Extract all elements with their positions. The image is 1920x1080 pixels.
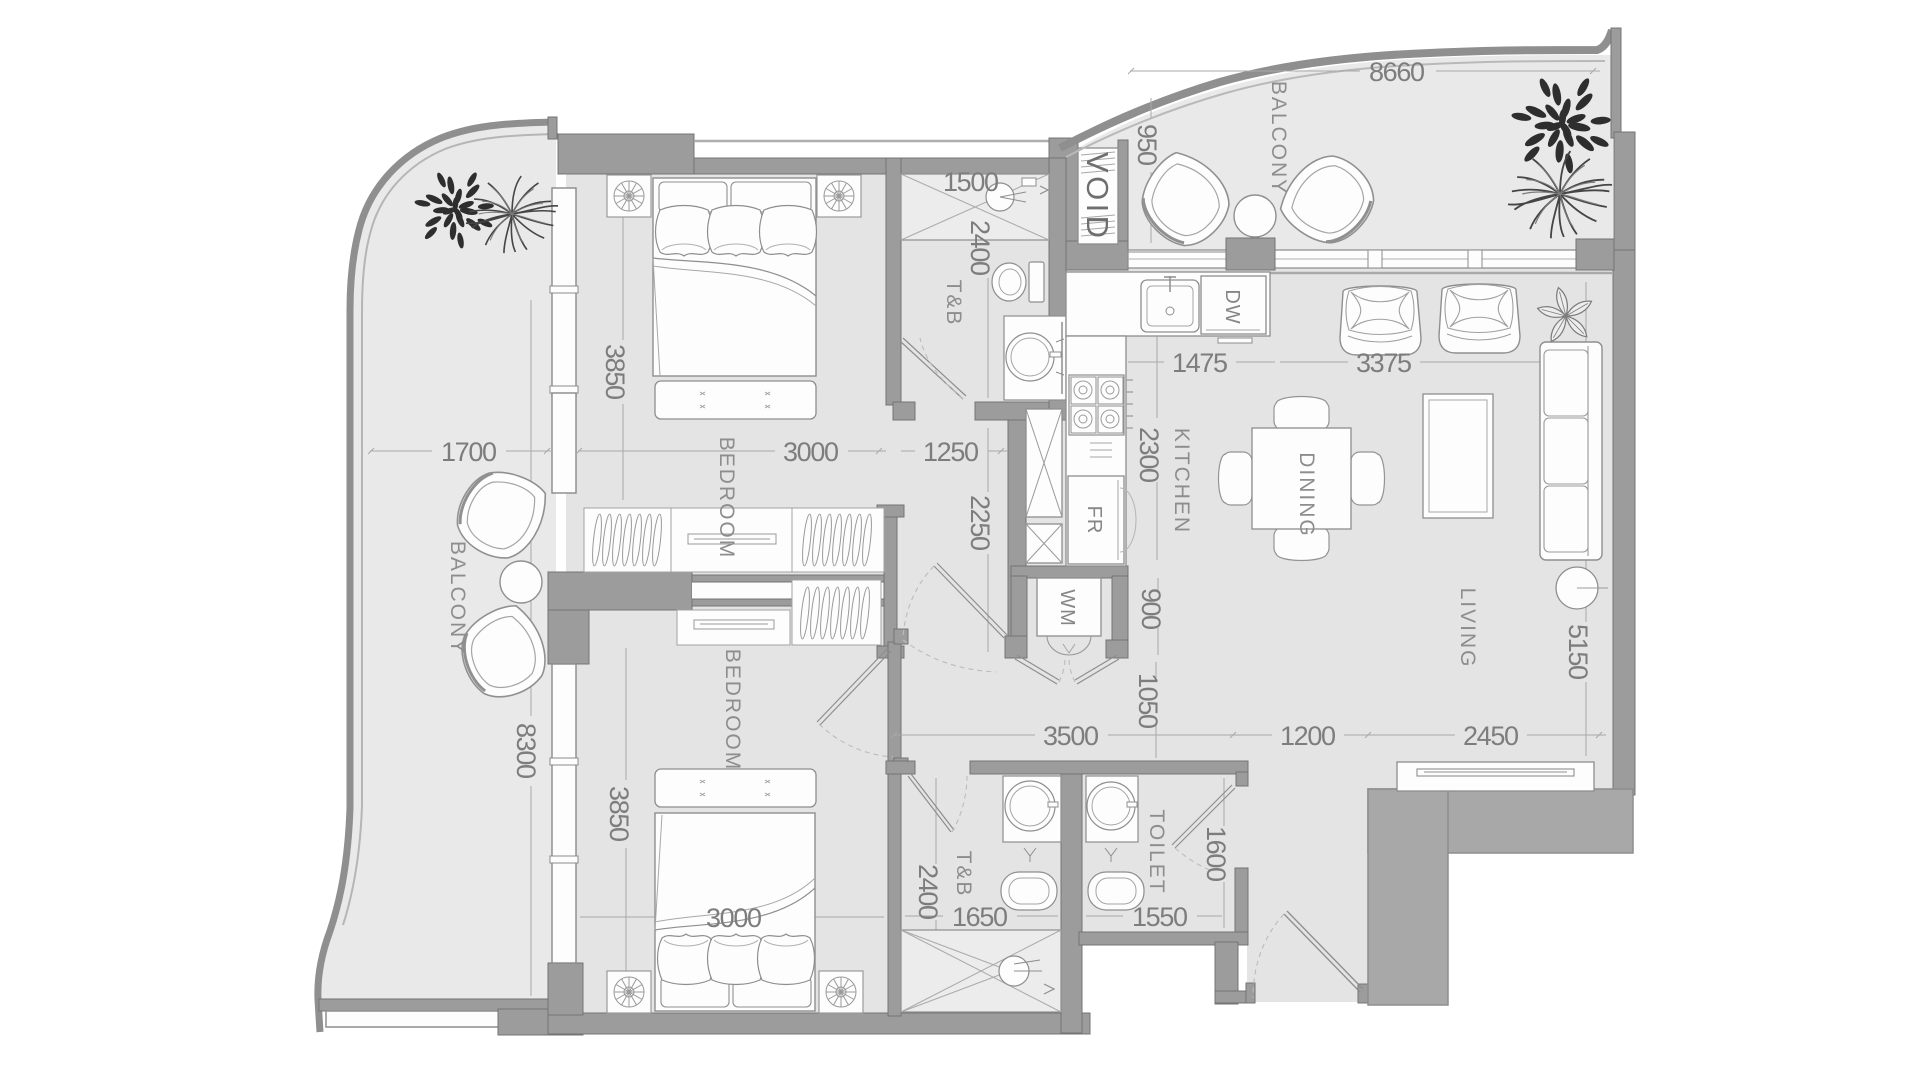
svg-text:1250: 1250 [923,437,979,467]
svg-text:950: 950 [1132,124,1162,166]
svg-text:1650: 1650 [952,902,1008,932]
svg-text:2400: 2400 [965,220,995,276]
svg-text:8300: 8300 [511,723,541,779]
svg-text:T&B: T&B [952,851,975,898]
svg-text:WM: WM [1056,589,1078,627]
svg-text:VOID: VOID [1080,152,1115,240]
svg-text:5150: 5150 [1563,624,1593,680]
svg-text:8660: 8660 [1369,57,1425,87]
svg-text:2300: 2300 [1134,427,1164,483]
svg-text:3850: 3850 [600,344,630,400]
svg-text:1700: 1700 [441,437,497,467]
svg-text:1200: 1200 [1280,721,1336,751]
svg-text:3000: 3000 [706,903,762,933]
svg-text:1050: 1050 [1133,673,1163,729]
svg-text:BALCONY: BALCONY [446,541,469,655]
svg-text:DW: DW [1221,289,1243,324]
svg-text:3500: 3500 [1043,721,1099,751]
svg-text:1500: 1500 [943,167,999,197]
svg-text:3375: 3375 [1356,348,1412,378]
svg-text:BEDROOM: BEDROOM [715,437,738,560]
svg-text:1550: 1550 [1132,902,1188,932]
svg-text:2250: 2250 [965,495,995,551]
svg-text:T&B: T&B [942,280,965,327]
svg-text:LIVING: LIVING [1456,588,1479,669]
svg-text:BEDROOM: BEDROOM [721,649,744,772]
svg-text:1600: 1600 [1201,826,1231,882]
svg-text:2400: 2400 [913,864,943,920]
svg-text:BALCONY: BALCONY [1267,81,1290,195]
svg-text:900: 900 [1136,588,1166,630]
svg-text:1475: 1475 [1172,348,1228,378]
svg-text:FR: FR [1083,506,1105,535]
svg-text:KITCHEN: KITCHEN [1170,428,1193,534]
svg-text:3850: 3850 [604,786,634,842]
svg-text:3000: 3000 [783,437,839,467]
svg-text:DINING: DINING [1295,452,1318,538]
svg-text:TOILET: TOILET [1145,809,1168,894]
svg-text:2450: 2450 [1463,721,1519,751]
